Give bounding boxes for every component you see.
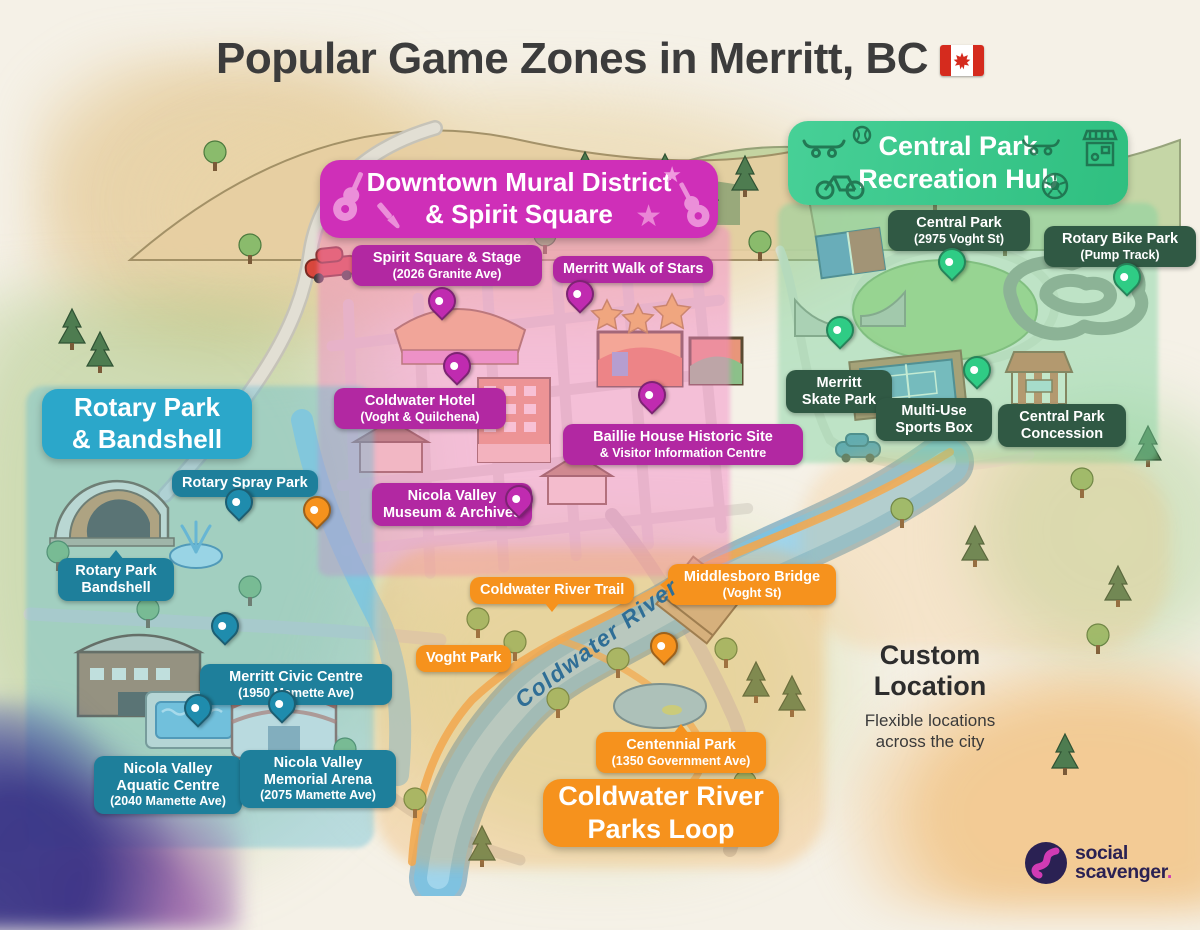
location-address: (Voght & Quilchena) (344, 410, 496, 424)
location-address: (2075 Mamette Ave) (250, 788, 386, 802)
location-name: Rotary Park Bandshell (68, 563, 164, 596)
concession-stand-illustration (1006, 352, 1072, 404)
location-name: Middlesboro Bridge (678, 569, 826, 586)
location-address: (2975 Voght St) (898, 232, 1020, 246)
guitar-icon (674, 178, 712, 234)
location-address: (1950 Mamette Ave) (210, 686, 382, 700)
banner-line2: Parks Loop (543, 813, 779, 846)
location-name: Merritt Skate Park (796, 375, 882, 408)
location-address: & Visitor Information Centre (573, 446, 793, 460)
label-coldwater-river-trail: Coldwater River Trail (470, 577, 634, 604)
location-address: (1350 Government Ave) (606, 754, 756, 768)
label-spirit-square-stage: Spirit Square & Stage (2026 Granite Ave) (352, 245, 542, 286)
social-scavenger-logo: social scavenger. (1025, 842, 1172, 884)
fountain-illustration (170, 522, 222, 568)
label-middlesboro-bridge: Middlesboro Bridge (Voght St) (668, 564, 836, 605)
logo-mark-icon (1025, 842, 1067, 884)
bandshell-illustration (50, 481, 174, 546)
location-name: Centennial Park (606, 737, 756, 754)
banner-downtown-mural-district: ★ ★ Downtown Mural District & Spirit Squ… (320, 160, 718, 238)
location-address: (2040 Mamette Ave) (104, 794, 232, 808)
location-name: Coldwater River Trail (480, 582, 624, 599)
location-name: Nicola Valley Aquatic Centre (104, 761, 232, 794)
location-name: Nicola Valley Museum & Archives (382, 488, 522, 521)
location-address: (Voght St) (678, 586, 826, 600)
label-nicola-valley-aquatic-centre: Nicola Valley Aquatic Centre (2040 Mamet… (94, 756, 242, 814)
location-name: Merritt Civic Centre (210, 669, 382, 686)
banner-line1: Downtown Mural District (320, 167, 718, 199)
label-voght-park: Voght Park (416, 645, 511, 672)
skateboard-icon (1020, 133, 1062, 157)
banner-coldwater-river-parks-loop: Coldwater River Parks Loop (543, 779, 779, 847)
title-bar: Popular Game Zones in Merritt, BC (0, 34, 1200, 84)
bicycle-icon (814, 167, 866, 201)
custom-location-title: Custom Location (855, 640, 1005, 702)
label-rotary-bike-park: Rotary Bike Park (Pump Track) (1044, 226, 1196, 267)
label-rotary-park-bandshell: Rotary Park Bandshell (58, 558, 174, 601)
banner-central-park-recreation-hub: Central Park Recreation Hub (788, 121, 1128, 205)
logo-word-scavenger: scavenger (1075, 861, 1167, 883)
banner-line2: & Bandshell (42, 424, 252, 456)
label-baillie-house: Baillie House Historic Site & Visitor In… (563, 424, 803, 465)
location-name: Multi-Use Sports Box (886, 403, 982, 436)
skateboard-icon (800, 133, 848, 159)
basketball-court-illustration (816, 228, 885, 278)
soccer-ball-icon (1040, 171, 1070, 201)
label-central-park-concession: Central Park Concession (998, 404, 1126, 447)
page-title: Popular Game Zones in Merritt, BC (216, 34, 928, 84)
canada-flag-icon (940, 45, 984, 76)
label-multi-use-sports-box: Multi-Use Sports Box (876, 398, 992, 441)
walk-of-stars-icons (592, 294, 690, 333)
location-name: Spirit Square & Stage (362, 250, 532, 267)
guitar-icon (330, 168, 370, 228)
custom-location-block: Custom Location Flexible locations acros… (835, 640, 1025, 753)
custom-location-subtitle: Flexible locations across the city (840, 710, 1020, 753)
star-icon: ★ (635, 202, 662, 232)
label-coldwater-hotel: Coldwater Hotel (Voght & Quilchena) (334, 388, 506, 429)
location-name: Rotary Bike Park (1054, 231, 1186, 248)
concession-stand-icon (1080, 127, 1120, 169)
location-name: Central Park (898, 215, 1020, 232)
banner-line1: Rotary Park (42, 392, 252, 424)
location-name: Nicola Valley Memorial Arena (250, 755, 386, 788)
label-central-park: Central Park (2975 Voght St) (888, 210, 1030, 251)
baseball-icon (852, 125, 872, 145)
centennial-pond (614, 684, 706, 728)
logo-text: social scavenger. (1075, 844, 1172, 881)
location-name: Coldwater Hotel (344, 393, 496, 410)
banner-line1: Coldwater River (543, 780, 779, 813)
location-name: Central Park Concession (1008, 409, 1116, 442)
logo-period: . (1167, 861, 1172, 883)
location-name: Baillie House Historic Site (573, 429, 793, 446)
label-merritt-walk-of-stars: Merritt Walk of Stars (553, 256, 713, 283)
banner-rotary-park-bandshell: Rotary Park & Bandshell (42, 389, 252, 459)
location-name: Merritt Walk of Stars (563, 261, 703, 278)
label-merritt-civic-centre: Merritt Civic Centre (1950 Mamette Ave) (200, 664, 392, 705)
paintbrush-icon (372, 198, 406, 234)
location-address: (2026 Granite Ave) (362, 267, 532, 281)
mural-illustrations (598, 332, 742, 386)
location-name: Voght Park (426, 650, 501, 667)
label-nicola-valley-memorial-arena: Nicola Valley Memorial Arena (2075 Mamet… (240, 750, 396, 808)
label-centennial-park: Centennial Park (1350 Government Ave) (596, 732, 766, 773)
location-address: (Pump Track) (1054, 248, 1186, 262)
